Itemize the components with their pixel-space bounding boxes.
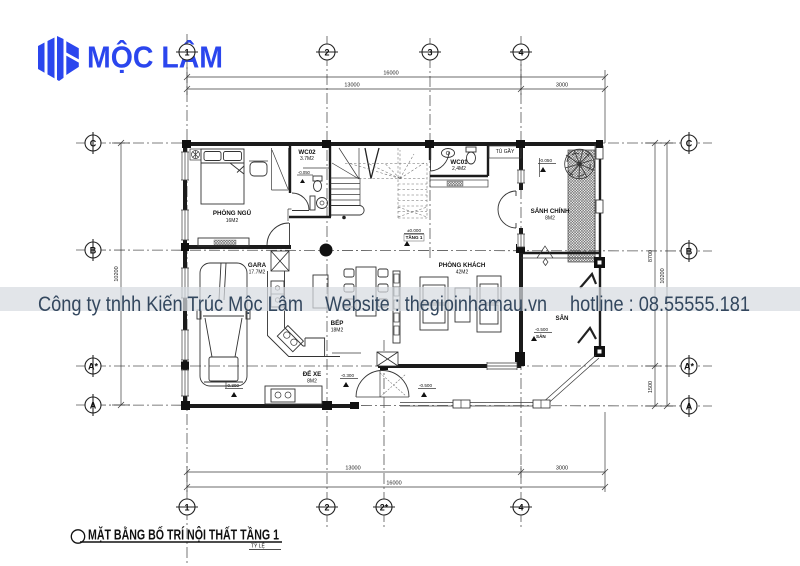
svg-text:SẢNH CHÍNH: SẢNH CHÍNH [531,207,570,215]
svg-text:1500: 1500 [648,381,654,393]
svg-text:A*: A* [88,362,98,372]
svg-text:3: 3 [427,48,432,58]
svg-text:3.7M2: 3.7M2 [300,156,314,162]
svg-text:±0.000: ±0.000 [407,228,421,233]
svg-text:MẶT BẰNG BỐ TRÍ NỘI THẤT TẦNG: MẶT BẰNG BỐ TRÍ NỘI THẤT TẦNG 1 [88,526,279,544]
svg-text:SÂN: SÂN [536,333,546,339]
svg-text:hotline : 08.55555.181: hotline : 08.55555.181 [570,292,750,316]
svg-text:8M2: 8M2 [307,379,317,385]
svg-text:4: 4 [518,48,523,58]
svg-text:Công ty tnhh Kiến Trúc Mộc Lâm: Công ty tnhh Kiến Trúc Mộc Lâm [38,292,303,316]
svg-text:TỦ GẦY: TỦ GẦY [496,148,515,155]
svg-text:-0.050: -0.050 [298,170,311,175]
svg-text:2,4M2: 2,4M2 [452,166,466,172]
svg-text:TẦNG 1: TẦNG 1 [406,234,423,240]
svg-text:1: 1 [184,503,189,513]
svg-text:TỶ LỆ: TỶ LỆ [251,542,266,550]
svg-text:13000: 13000 [345,466,360,472]
svg-text:GARA: GARA [248,262,267,269]
svg-text:B: B [686,247,693,257]
svg-text:PHÒNG KHÁCH: PHÒNG KHÁCH [439,261,486,269]
svg-text:-0.300: -0.300 [226,383,239,388]
svg-text:A: A [90,401,97,411]
svg-text:8M2: 8M2 [545,216,555,222]
svg-text:16000: 16000 [383,71,398,77]
svg-text:10200: 10200 [114,266,120,281]
svg-text:ĐỂ XE: ĐỂ XE [303,371,322,378]
svg-text:C: C [686,139,693,149]
svg-text:13000: 13000 [344,83,359,89]
svg-text:2: 2 [324,48,329,58]
svg-text:1: 1 [184,48,189,58]
svg-text:17.7M2: 17.7M2 [249,270,266,276]
svg-text:10200: 10200 [660,268,666,283]
svg-text:3000: 3000 [556,83,568,89]
svg-text:Website : thegioinhamau.vn: Website : thegioinhamau.vn [325,292,547,316]
svg-text:-0.500: -0.500 [419,383,432,388]
svg-text:A: A [686,402,693,412]
svg-text:2: 2 [324,503,329,513]
svg-text:A*: A* [684,362,694,372]
svg-text:4: 4 [518,503,523,513]
svg-text:8700: 8700 [648,250,654,262]
svg-text:B: B [90,246,97,256]
svg-text:C: C [90,139,97,149]
svg-text:18M2: 18M2 [331,328,344,334]
svg-text:BẾP: BẾP [331,320,344,327]
svg-text:-0.300: -0.300 [341,373,354,378]
svg-text:MỘC LÂM: MỘC LÂM [87,39,223,75]
svg-text:SÂN: SÂN [555,315,569,322]
svg-text:PHÒNG NGỦ: PHÒNG NGỦ [213,209,252,217]
svg-text:42M2: 42M2 [456,270,469,276]
svg-text:16000: 16000 [386,481,401,487]
svg-text:WC01: WC01 [450,159,468,166]
svg-text:WC02: WC02 [298,149,316,156]
svg-text:-0.050: -0.050 [539,158,552,163]
svg-text:-0.500: -0.500 [535,327,548,332]
svg-text:2*: 2* [380,503,389,513]
svg-text:16M2: 16M2 [226,218,239,224]
svg-text:3000: 3000 [556,466,568,472]
